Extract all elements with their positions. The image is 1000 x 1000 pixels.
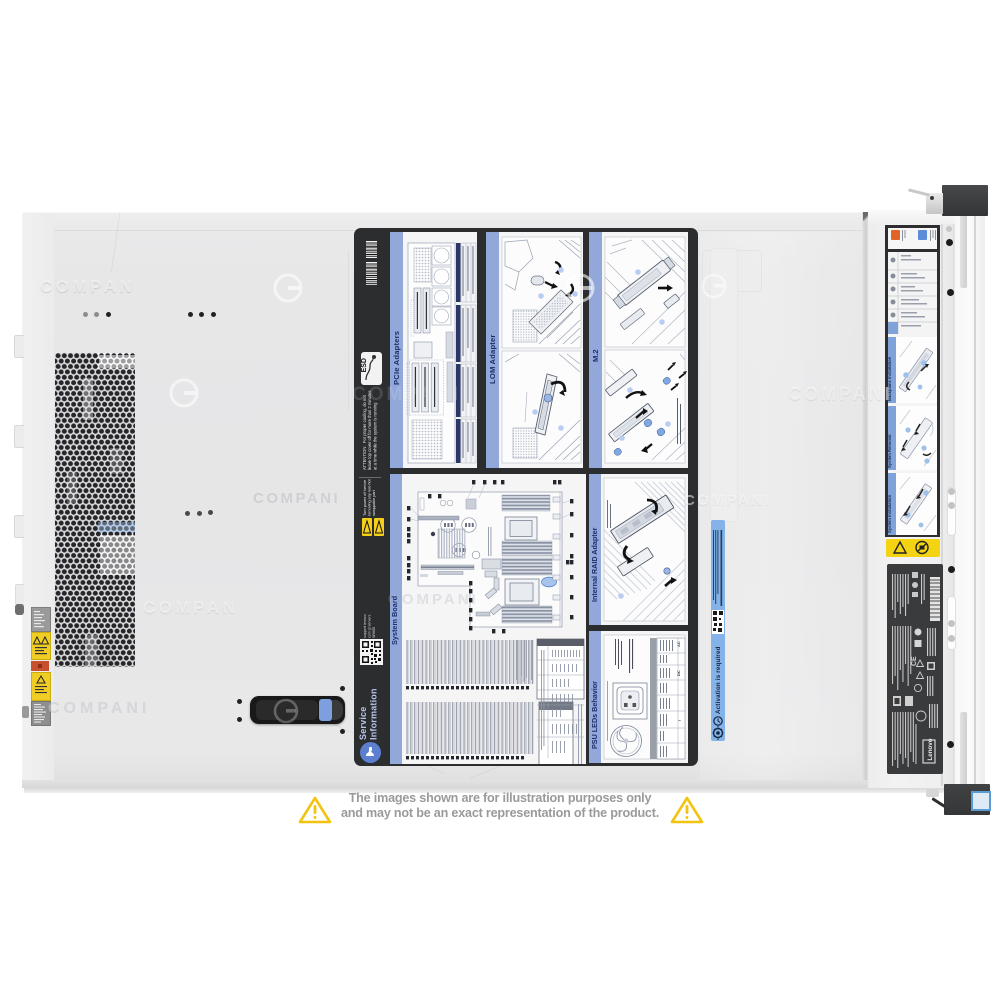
svg-text:CE: CE (911, 656, 918, 666)
svg-text:Lenovo: Lenovo (927, 738, 934, 760)
svg-text:DC: DC (676, 670, 681, 676)
svg-text:AC: AC (676, 641, 681, 647)
svg-text:!: ! (677, 720, 682, 721)
